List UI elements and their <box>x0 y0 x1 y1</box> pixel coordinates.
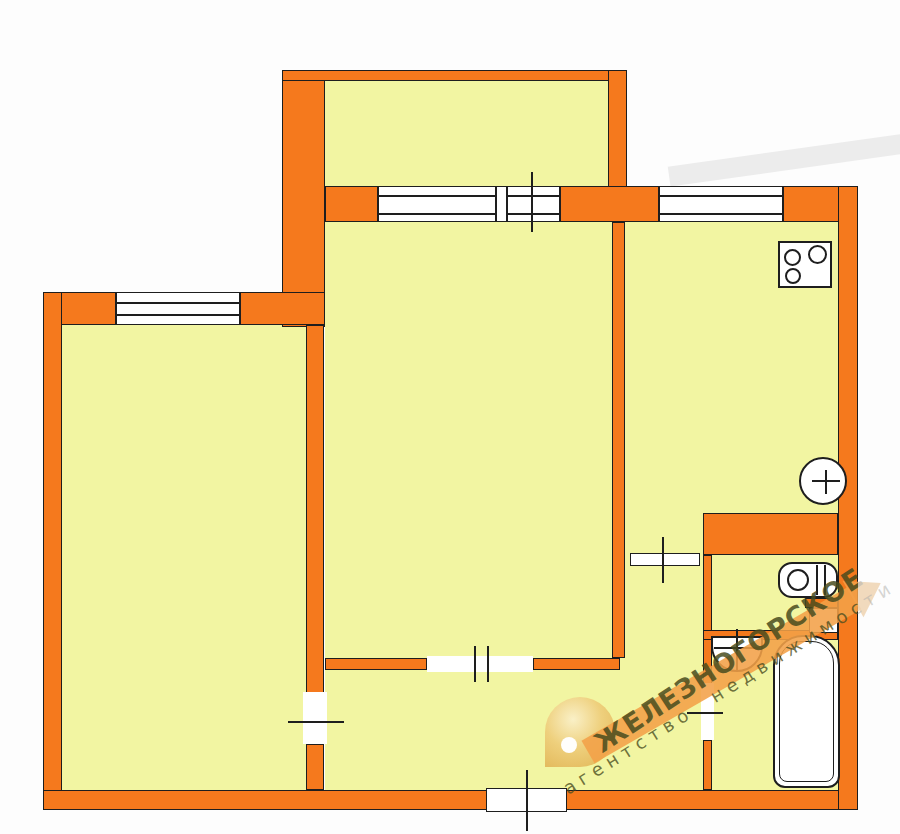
toilet-bowl-icon <box>787 569 809 591</box>
wall-bedroom-hall-upper <box>306 325 324 694</box>
window-sill-line <box>660 213 782 215</box>
toilet-icon <box>778 562 838 598</box>
wall-living-bottom-left <box>325 658 427 670</box>
bedroom-door-opening <box>303 692 327 744</box>
toilet-tank-line <box>824 565 826 595</box>
bedroom-floor <box>62 325 306 790</box>
wall-top-segment-middle <box>560 186 659 222</box>
living-kitchen-hall-floor <box>325 222 838 790</box>
wall-bedroom-hall-lower <box>306 744 324 790</box>
bathroom-door-swing-tick <box>687 712 723 714</box>
wall-outer-left <box>43 292 62 810</box>
stove-burner-icon <box>808 245 827 264</box>
toilet-tank-line <box>816 565 818 595</box>
wall-outer-bottom <box>43 790 858 810</box>
floor-plan <box>0 0 900 834</box>
wall-wc-top-thick <box>703 513 838 555</box>
kitchen-window <box>659 186 783 222</box>
vent-duct-icon <box>805 598 838 608</box>
living-room-door-swing-tick <box>474 646 476 682</box>
window-sill-line <box>117 302 239 304</box>
wall-hall-bath-lower <box>703 740 712 790</box>
stove-burner-icon <box>784 249 801 266</box>
window-sill-line <box>117 314 239 316</box>
living-room-door-opening <box>427 656 533 672</box>
window-sill-line <box>379 213 495 215</box>
window-sill-line <box>508 195 559 197</box>
wall-bedroom-top-right <box>240 292 325 325</box>
bedroom-window <box>116 292 240 325</box>
living-room-door-swing-tick <box>487 646 489 682</box>
bedroom-door-swing-tick <box>288 721 344 723</box>
stove-icon <box>778 241 832 288</box>
sink-cross-line <box>825 470 827 494</box>
wall-balcony-left <box>282 70 325 327</box>
wall-hall-wc-upper <box>703 555 712 685</box>
floor-plan-scene: ЖЕЛЕЗНОГОРСКОЕ агентство недвижимости <box>0 0 900 834</box>
wall-living-bottom-right <box>533 658 620 670</box>
wall-outer-right <box>838 186 858 810</box>
wall-balcony-right <box>608 70 627 188</box>
wall-balcony-top <box>282 70 627 81</box>
wc-door-leaf <box>809 608 838 633</box>
balcony-floor <box>325 80 608 188</box>
living-room-window <box>378 186 496 222</box>
window-sill-line <box>508 213 559 215</box>
balcony-door <box>507 186 560 222</box>
entrance-door-swing-tick <box>526 770 528 831</box>
window-mullion <box>496 186 507 222</box>
window-sill-line <box>379 195 495 197</box>
balcony-door-swing-tick <box>531 172 533 232</box>
wall-top-segment-left <box>325 186 378 222</box>
kitchen-door-opening <box>630 553 700 566</box>
bathtub-inner-line <box>779 641 834 782</box>
kitchen-door-swing-tick <box>662 537 664 583</box>
stove-burner-icon <box>785 268 801 284</box>
washbasin-cross-line <box>736 629 738 672</box>
window-sill-line <box>660 195 782 197</box>
bathtub-icon <box>773 635 840 788</box>
wall-living-kitchen-divider <box>612 222 625 658</box>
